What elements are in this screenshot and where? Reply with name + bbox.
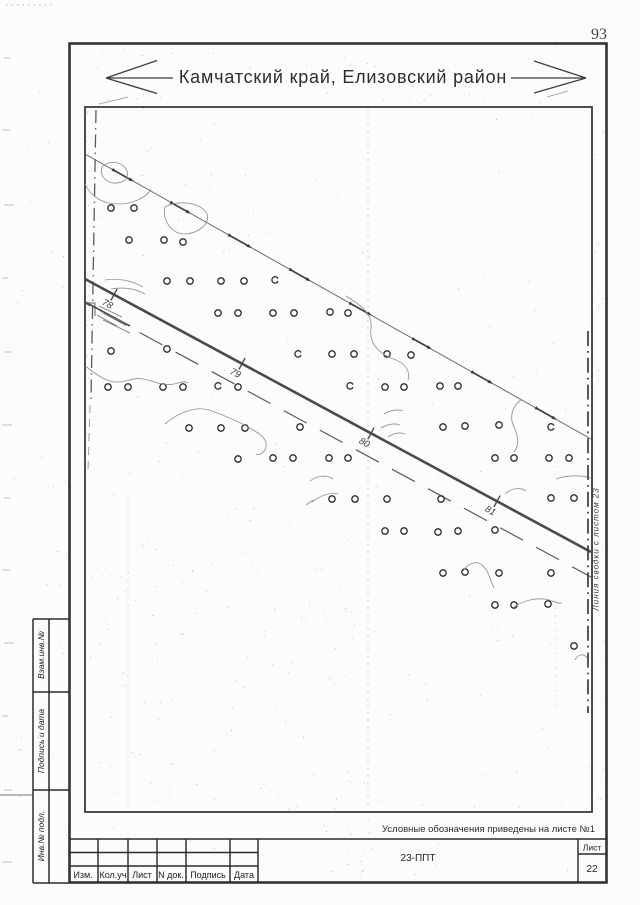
svg-text:Линия сводки с листом 23: Линия сводки с листом 23 <box>592 487 601 611</box>
svg-text:Дата: Дата <box>234 870 254 880</box>
svg-text:Подпись и дата: Подпись и дата <box>36 709 46 774</box>
svg-text:N док.: N док. <box>158 870 184 880</box>
svg-text:93: 93 <box>591 26 607 43</box>
svg-text:Изм.: Изм. <box>73 870 92 880</box>
svg-text:22: 22 <box>586 864 598 875</box>
svg-text:Кол.уч: Кол.уч <box>100 870 127 880</box>
svg-text:Условные обозначения приведены: Условные обозначения приведены на листе … <box>382 824 595 835</box>
svg-text:23-ППТ: 23-ППТ <box>401 853 436 864</box>
svg-text:Камчатский край, Елизовский ра: Камчатский край, Елизовский район <box>179 67 507 87</box>
svg-text:Лист: Лист <box>583 843 602 853</box>
svg-text:Взам.инв.№: Взам.инв.№ <box>36 631 46 679</box>
svg-text:Инв.№ подл.: Инв.№ подл. <box>36 811 46 861</box>
svg-text:Лист: Лист <box>132 870 152 880</box>
svg-text:Подпись: Подпись <box>190 870 226 880</box>
